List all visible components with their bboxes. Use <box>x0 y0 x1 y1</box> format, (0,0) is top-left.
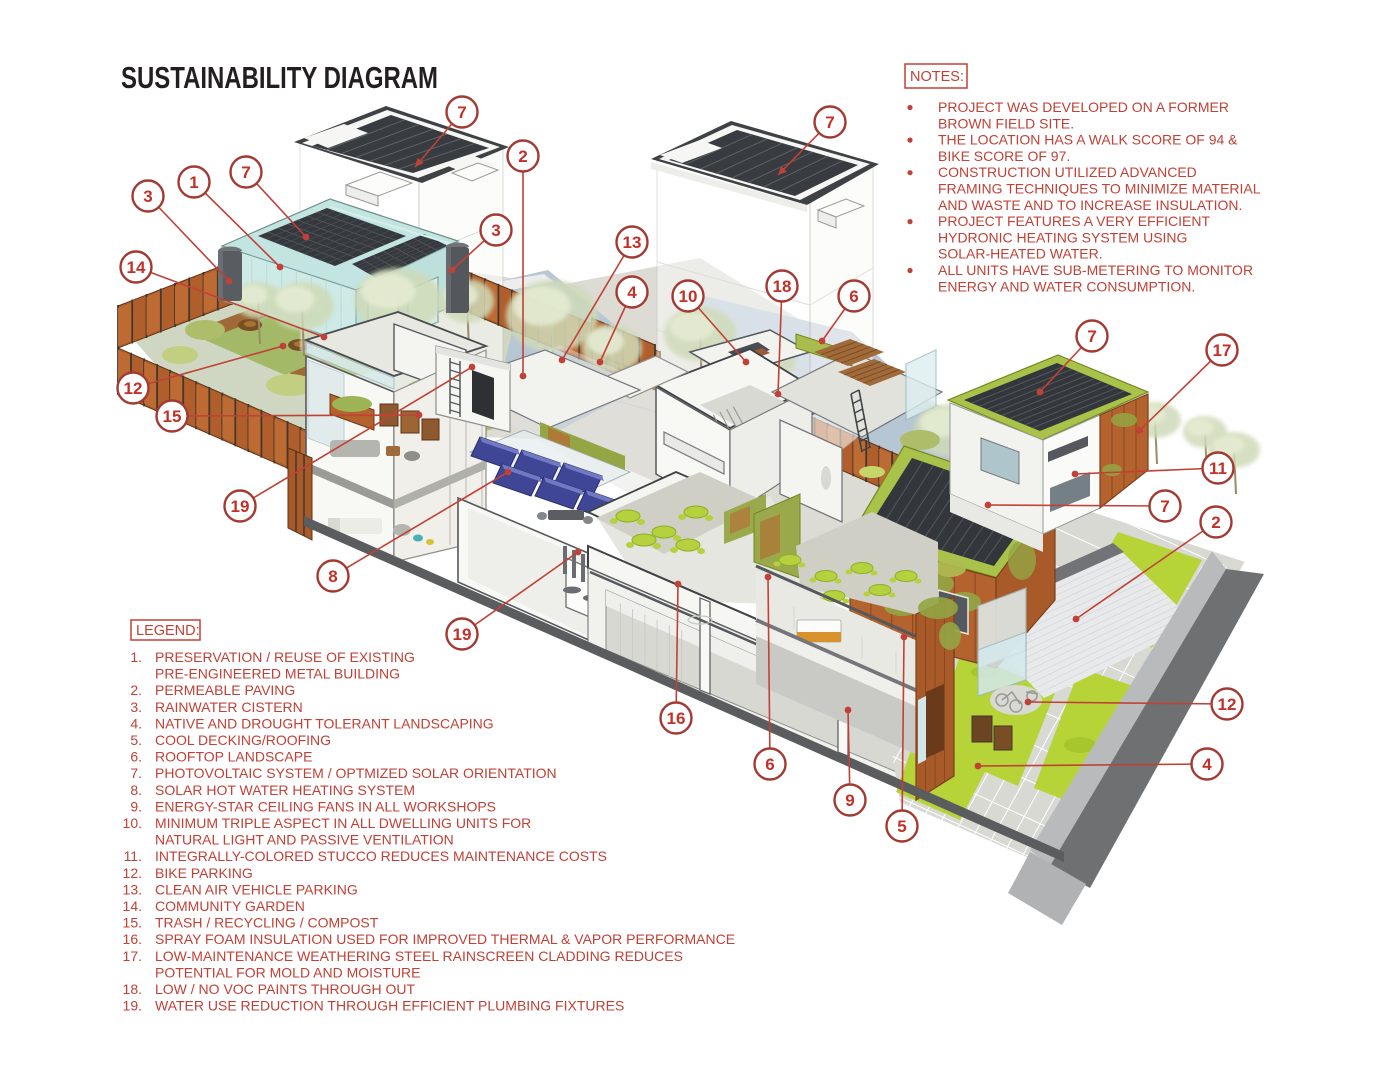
svg-text:17.: 17. <box>123 948 142 964</box>
svg-text:5: 5 <box>897 817 906 836</box>
svg-text:PROJECT WAS DEVELOPED ON A FOR: PROJECT WAS DEVELOPED ON A FORMER <box>938 99 1229 115</box>
svg-text:16: 16 <box>667 709 686 728</box>
svg-text:SOLAR-HEATED WATER.: SOLAR-HEATED WATER. <box>938 246 1103 262</box>
svg-text:RAINWATER CISTERN: RAINWATER CISTERN <box>155 699 303 715</box>
svg-text:3.: 3. <box>130 699 142 715</box>
svg-text:PROJECT FEATURES A VERY EFFICI: PROJECT FEATURES A VERY EFFICIENT <box>938 213 1210 229</box>
svg-text:12: 12 <box>124 379 143 398</box>
svg-text:19.: 19. <box>123 998 142 1014</box>
svg-text:15: 15 <box>163 407 182 426</box>
svg-text:1: 1 <box>189 173 198 192</box>
svg-text:LOW-MAINTENANCE WEATHERING STE: LOW-MAINTENANCE WEATHERING STEEL RAINSCR… <box>155 948 683 964</box>
svg-text:9.: 9. <box>130 798 142 814</box>
svg-text:18.: 18. <box>123 981 142 997</box>
svg-text:SOLAR HOT WATER HEATING SYSTEM: SOLAR HOT WATER HEATING SYSTEM <box>155 782 415 798</box>
svg-text:SUSTAINABILITY DIAGRAM: SUSTAINABILITY DIAGRAM <box>121 61 438 95</box>
svg-text:LEGEND:: LEGEND: <box>136 623 200 639</box>
svg-text:ENERGY-STAR CEILING FANS IN AL: ENERGY-STAR CEILING FANS IN ALL WORKSHOP… <box>155 798 496 814</box>
svg-text:1.: 1. <box>130 649 142 665</box>
svg-text:6: 6 <box>849 287 858 306</box>
svg-text:SPRAY FOAM INSULATION USED FOR: SPRAY FOAM INSULATION USED FOR IMPROVED … <box>155 931 735 947</box>
svg-text:12.: 12. <box>123 865 142 881</box>
svg-text:THE LOCATION HAS A WALK SCORE: THE LOCATION HAS A WALK SCORE OF 94 & <box>938 132 1238 148</box>
svg-text:7: 7 <box>241 163 250 182</box>
svg-text:FRAMING TECHNIQUES TO MINIMIZE: FRAMING TECHNIQUES TO MINIMIZE MATERIAL <box>938 181 1261 197</box>
svg-text:ALL UNITS HAVE SUB-METERING TO: ALL UNITS HAVE SUB-METERING TO MONITOR <box>938 262 1253 278</box>
svg-text:PHOTOVOLTAIC SYSTEM / OPTMIZED: PHOTOVOLTAIC SYSTEM / OPTMIZED SOLAR ORI… <box>155 765 557 781</box>
svg-text:19: 19 <box>453 625 472 644</box>
svg-text:11.: 11. <box>124 848 142 864</box>
svg-text:12: 12 <box>1218 695 1237 714</box>
svg-text:PRESERVATION / REUSE OF EXISTI: PRESERVATION / REUSE OF EXISTING <box>155 649 415 665</box>
svg-text:CONSTRUCTION UTILIZED ADVANCED: CONSTRUCTION UTILIZED ADVANCED <box>938 164 1197 180</box>
svg-text:COMMUNITY GARDEN: COMMUNITY GARDEN <box>155 898 305 914</box>
svg-text:CLEAN AIR VEHICLE PARKING: CLEAN AIR VEHICLE PARKING <box>155 881 358 897</box>
svg-text:2: 2 <box>1211 513 1220 532</box>
svg-text:8: 8 <box>328 567 337 586</box>
svg-text:BROWN FIELD SITE.: BROWN FIELD SITE. <box>938 115 1074 131</box>
svg-text:4.: 4. <box>130 715 142 731</box>
svg-text:7.: 7. <box>130 765 142 781</box>
svg-text:TRASH / RECYCLING / COMPOST: TRASH / RECYCLING / COMPOST <box>155 915 379 931</box>
svg-text:13.: 13. <box>123 881 142 897</box>
svg-text:NATIVE AND DROUGHT TOLERANT LA: NATIVE AND DROUGHT TOLERANT LANDSCAPING <box>155 715 494 731</box>
svg-text:PERMEABLE PAVING: PERMEABLE PAVING <box>155 682 295 698</box>
svg-text:6: 6 <box>765 755 774 774</box>
svg-text:5.: 5. <box>130 732 142 748</box>
svg-text:8.: 8. <box>130 782 142 798</box>
svg-text:14.: 14. <box>123 898 142 914</box>
svg-text:PRE-ENGINEERED METAL BUILDING: PRE-ENGINEERED METAL BUILDING <box>155 666 400 682</box>
svg-text:3: 3 <box>143 187 152 206</box>
svg-text:COOL DECKING/ROOFING: COOL DECKING/ROOFING <box>155 732 331 748</box>
svg-text:3: 3 <box>491 221 500 240</box>
svg-text:BIKE PARKING: BIKE PARKING <box>155 865 253 881</box>
svg-text:2.: 2. <box>130 682 142 698</box>
svg-text:11: 11 <box>1209 459 1227 478</box>
svg-text:7: 7 <box>1160 497 1169 516</box>
svg-text:7: 7 <box>457 103 466 122</box>
svg-text:ENERGY AND WATER CONSUMPTION.: ENERGY AND WATER CONSUMPTION. <box>938 278 1195 294</box>
svg-text:6.: 6. <box>130 749 142 765</box>
svg-text:10: 10 <box>679 287 698 306</box>
svg-text:HYDRONIC HEATING SYSTEM USING: HYDRONIC HEATING SYSTEM USING <box>938 229 1187 245</box>
svg-text:AND WASTE AND TO INCREASE INSU: AND WASTE AND TO INCREASE INSULATION. <box>938 197 1242 213</box>
svg-text:15.: 15. <box>123 915 142 931</box>
svg-text:7: 7 <box>1087 327 1096 346</box>
svg-text:NOTES:: NOTES: <box>910 69 964 85</box>
svg-text:ROOFTOP LANDSCAPE: ROOFTOP LANDSCAPE <box>155 749 312 765</box>
svg-text:POTENTIAL FOR MOLD AND MOISTUR: POTENTIAL FOR MOLD AND MOISTURE <box>155 964 421 980</box>
svg-text:2: 2 <box>518 147 527 166</box>
svg-text:4: 4 <box>627 283 637 302</box>
svg-text:10.: 10. <box>123 815 142 831</box>
svg-text:WATER USE REDUCTION THROUGH EF: WATER USE REDUCTION THROUGH EFFICIENT PL… <box>155 998 624 1014</box>
svg-text:BIKE SCORE OF 97.: BIKE SCORE OF 97. <box>938 148 1070 164</box>
svg-text:NATURAL LIGHT AND PASSIVE VENT: NATURAL LIGHT AND PASSIVE VENTILATION <box>155 832 454 848</box>
svg-text:19: 19 <box>231 497 250 516</box>
svg-text:16.: 16. <box>123 931 142 947</box>
svg-text:7: 7 <box>825 113 834 132</box>
svg-text:MINIMUM TRIPLE ASPECT IN ALL D: MINIMUM TRIPLE ASPECT IN ALL DWELLING UN… <box>155 815 531 831</box>
svg-text:18: 18 <box>773 277 792 296</box>
svg-text:17: 17 <box>1213 341 1232 360</box>
svg-text:9: 9 <box>845 791 854 810</box>
svg-text:14: 14 <box>127 258 146 277</box>
svg-text:13: 13 <box>623 233 642 252</box>
svg-text:LOW / NO VOC PAINTS THROUGH OU: LOW / NO VOC PAINTS THROUGH OUT <box>155 981 416 997</box>
svg-text:INTEGRALLY-COLORED STUCCO REDU: INTEGRALLY-COLORED STUCCO REDUCES MAINTE… <box>155 848 607 864</box>
svg-text:4: 4 <box>1202 755 1212 774</box>
